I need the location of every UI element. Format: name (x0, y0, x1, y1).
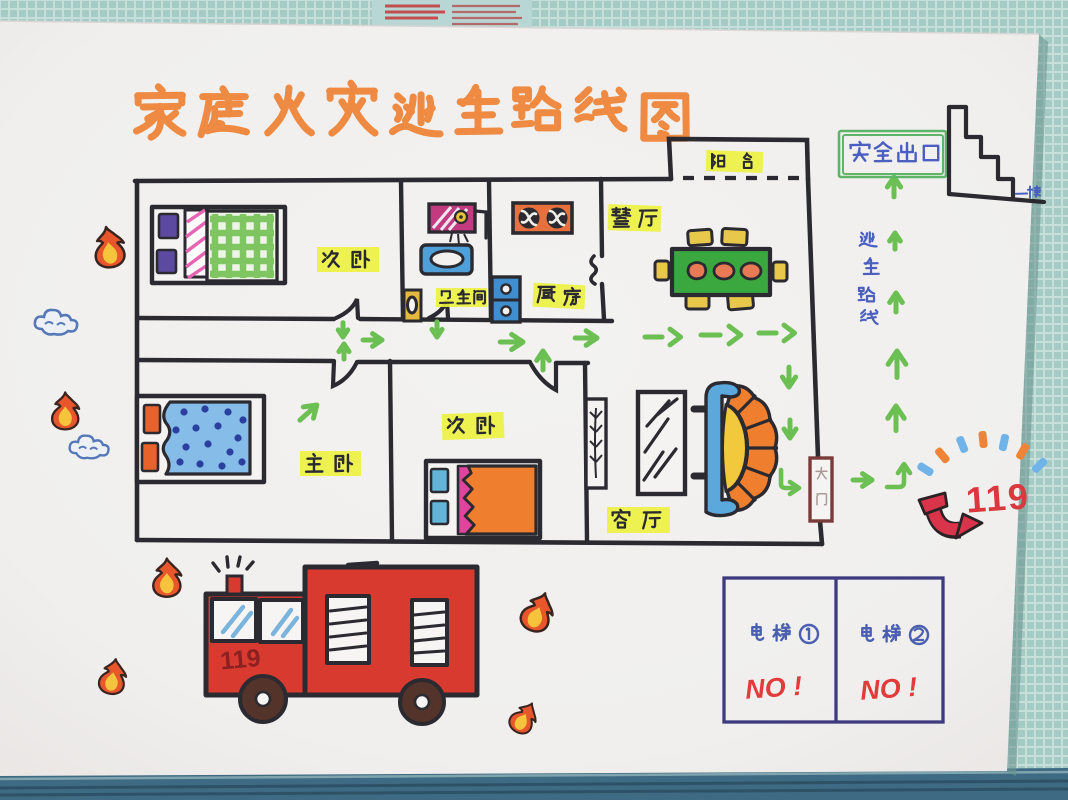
svg-text:NO !: NO ! (859, 672, 918, 706)
svg-text:119: 119 (965, 475, 1032, 520)
svg-text:NO !: NO ! (744, 671, 803, 705)
svg-text:119: 119 (219, 644, 262, 675)
